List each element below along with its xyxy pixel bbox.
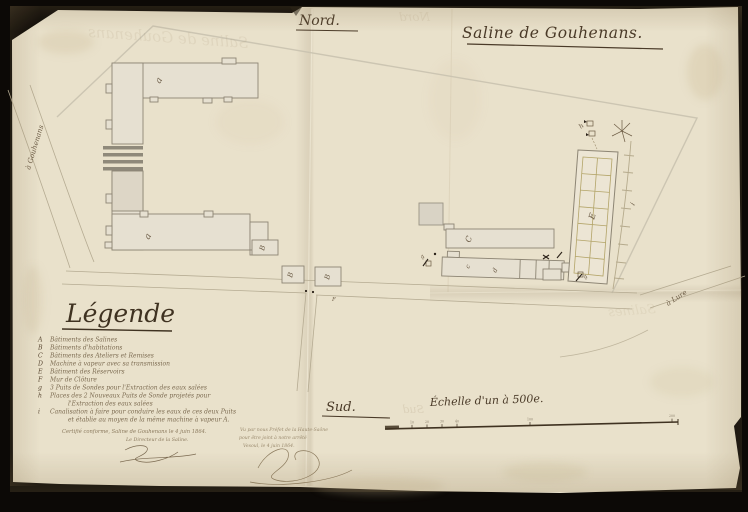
scale-tick-label: 100	[527, 418, 533, 422]
scale-tick-label: 30	[440, 420, 444, 424]
legend-item-text2: l'Extraction des eaux salées	[68, 401, 153, 408]
ghost-text: Sud	[402, 403, 424, 416]
building-annex-1	[543, 269, 561, 280]
legend-item-text: Places des 2 Nouveaux Puits de Sonde pro…	[49, 393, 211, 400]
south-label: Sud.	[326, 400, 356, 415]
scale-tick-label: 40	[455, 419, 459, 423]
building-a-south-wing	[112, 214, 250, 250]
legend-item-text: Bâtiments des Salines	[49, 337, 117, 344]
building-a-west-wing-upper	[112, 63, 143, 144]
legend-item-text2: et établie au moyen de la même machine à…	[68, 417, 230, 424]
prefect-line3: Vesoul, le 4 juin 1864.	[243, 443, 295, 449]
scale-tick-label: 20	[425, 420, 429, 424]
plan-canvas: Nord. Saline de Gouhenans. Sud. Échelle …	[0, 0, 748, 512]
legend-title: Légende	[65, 299, 175, 328]
legend-item-text: Machine à vapeur avec sa transmission	[49, 361, 170, 368]
legend-item-text: Bâtiment des Réservoirs	[49, 369, 125, 376]
scanned-plan-document: Nord. Saline de Gouhenans. Sud. Échelle …	[0, 0, 748, 512]
scale-tick-label: 200	[669, 414, 675, 418]
legend-item-text: Bâtiments d'habitations	[49, 345, 122, 352]
prefect-line2: pour être joint à notre arrêté	[239, 434, 307, 441]
building-c-upper	[446, 229, 554, 248]
prefect-line1: Vu par nous Préfet de la Haute-Saône	[240, 426, 328, 433]
legend-item-text: Mur de Clôture	[49, 377, 97, 384]
legend-item-text: Bâtiments des Ateliers et Remises	[49, 353, 154, 360]
certification-line2: Le Directeur de la Saline.	[125, 437, 189, 443]
machine-building-d	[419, 203, 443, 225]
certification-line1: Certifié conforme, Saline de Gouhenans l…	[62, 428, 207, 435]
legend-item-text: Canalisation à faire pour conduire les e…	[50, 409, 236, 416]
building-a-shaded-section	[112, 171, 143, 211]
map-label-F: F	[331, 297, 336, 303]
legend-item-text: 3 Puits de Sondes pour l'Extraction des …	[50, 385, 207, 392]
scale-tick-label: 10	[410, 420, 414, 424]
